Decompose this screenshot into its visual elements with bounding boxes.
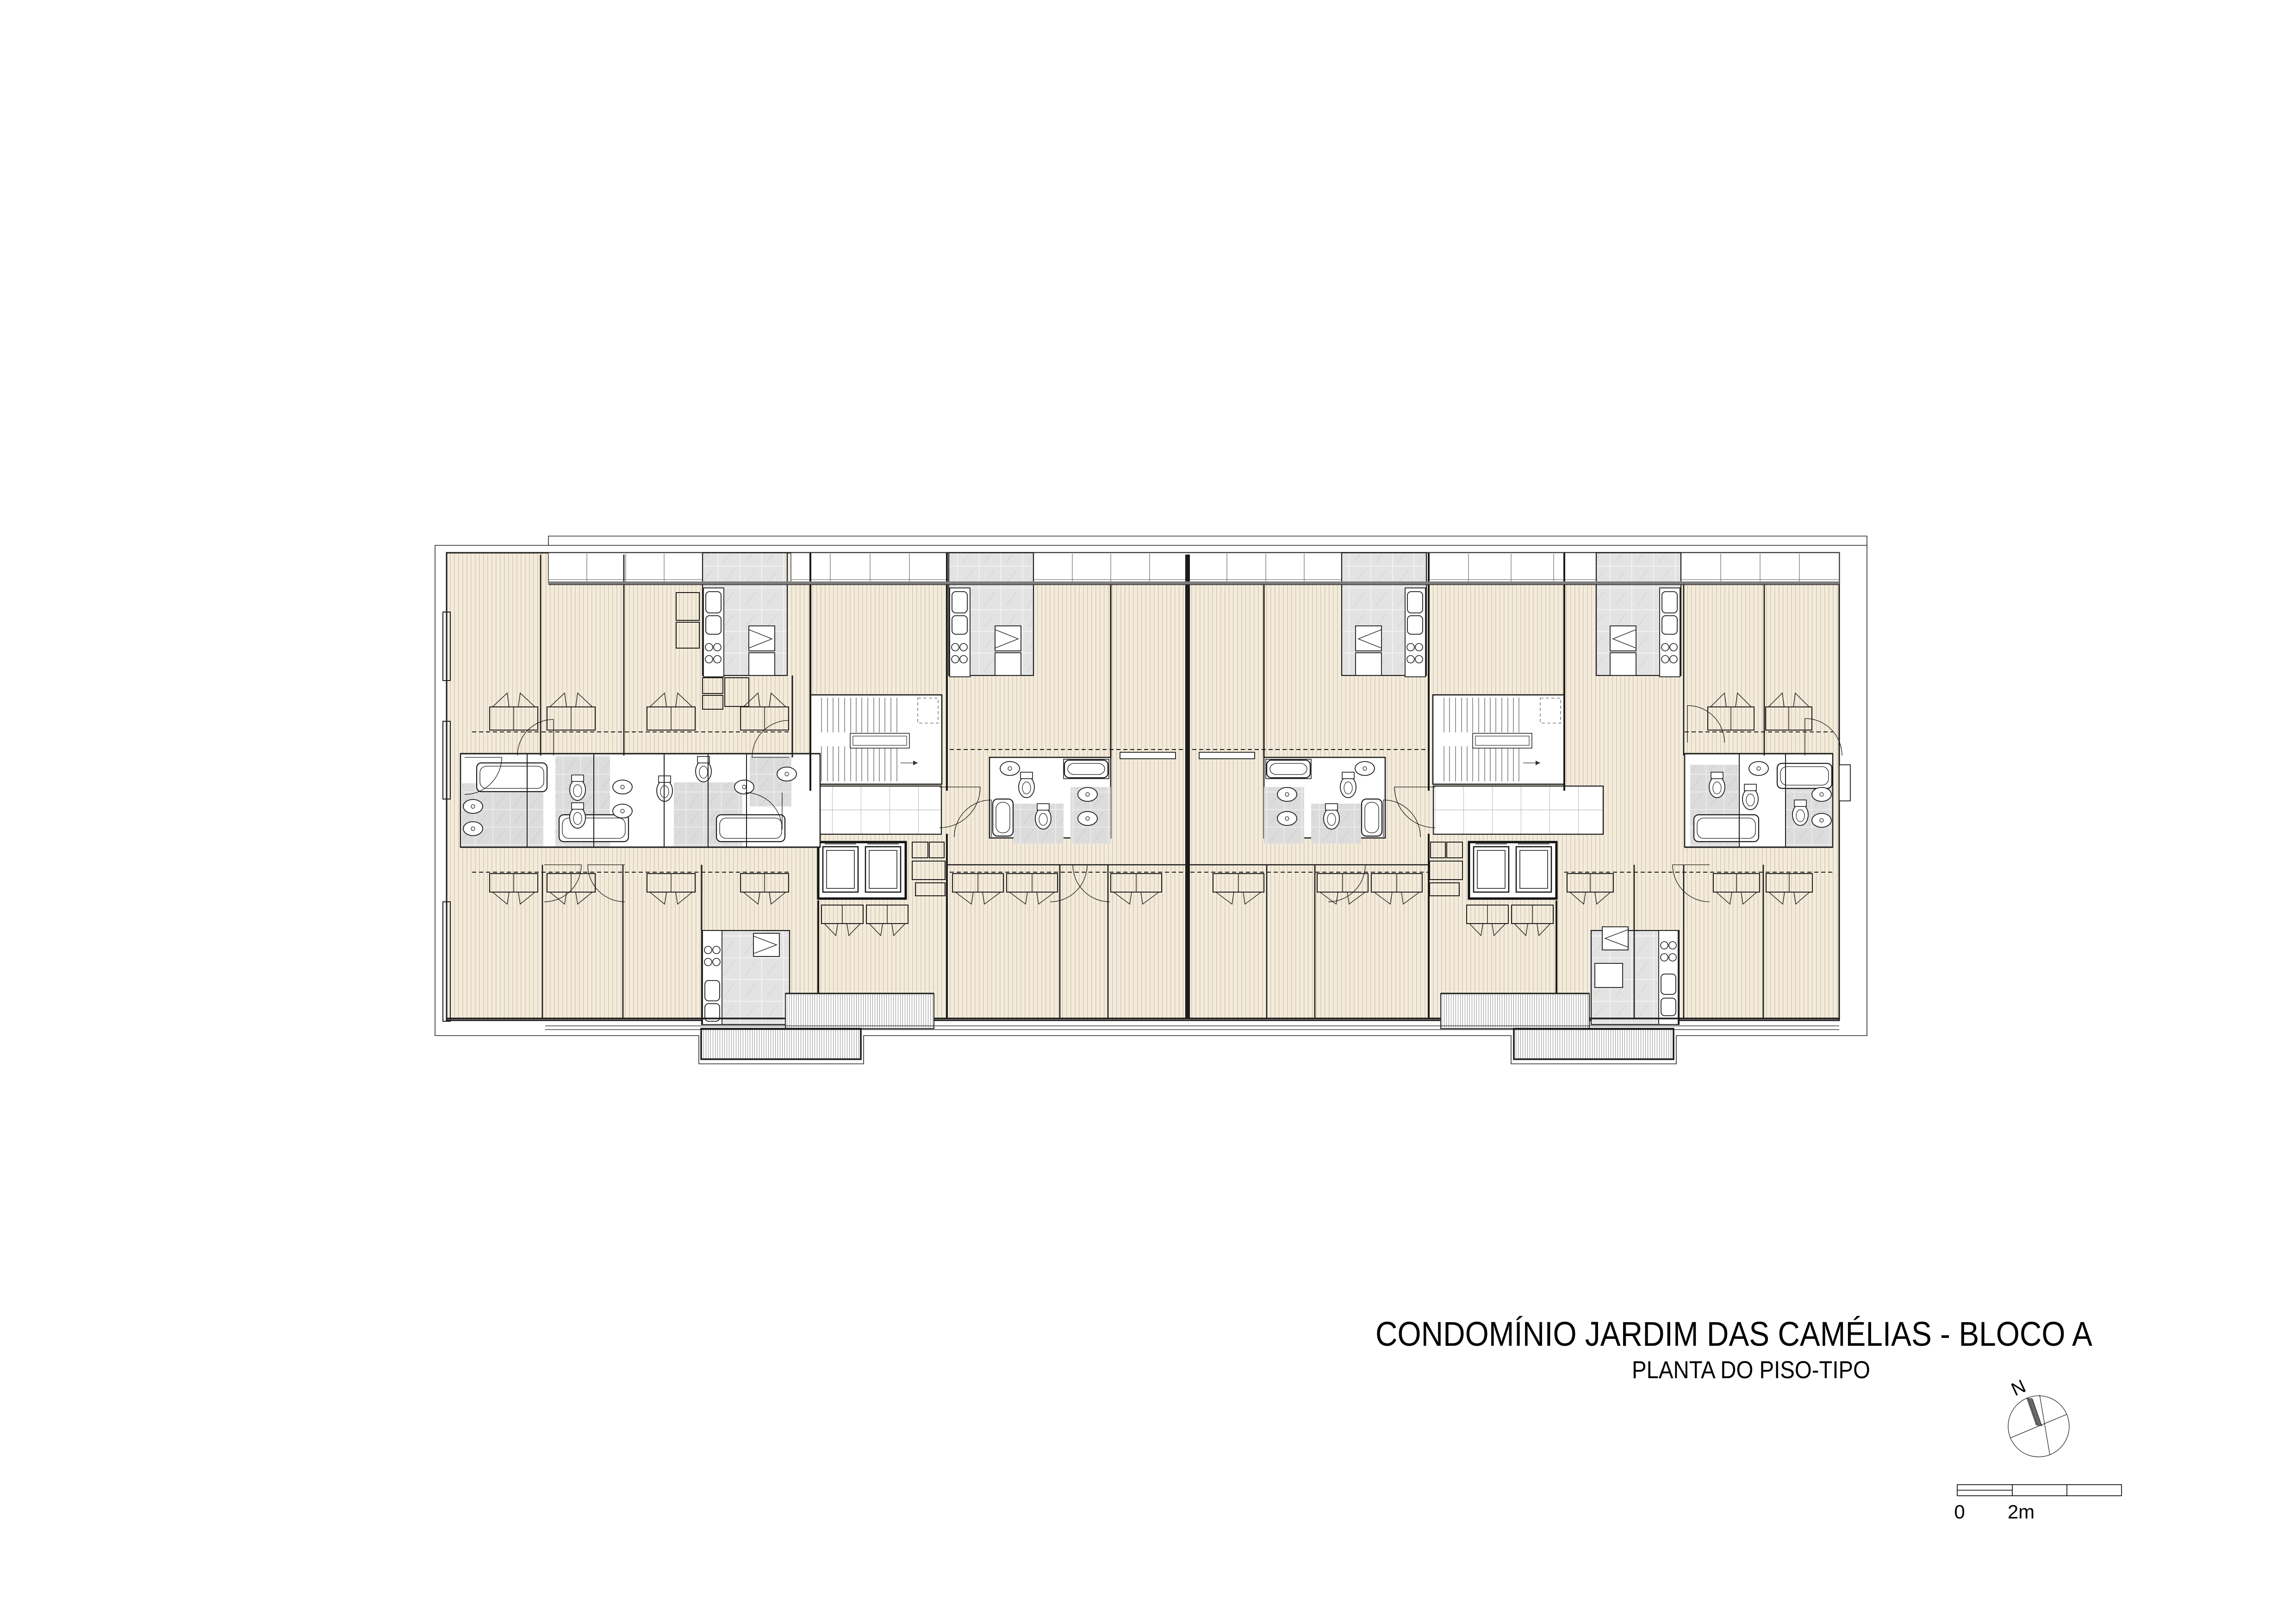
svg-text:CONDOMÍNIO JARDIM DAS CAMÉLIAS: CONDOMÍNIO JARDIM DAS CAMÉLIAS - BLOCO A [1375, 1315, 2093, 1353]
svg-text:PLANTA DO PISO-TIPO: PLANTA DO PISO-TIPO [1632, 1356, 1870, 1384]
svg-text:0: 0 [1954, 1501, 1965, 1523]
svg-text:2m: 2m [2008, 1501, 2035, 1523]
